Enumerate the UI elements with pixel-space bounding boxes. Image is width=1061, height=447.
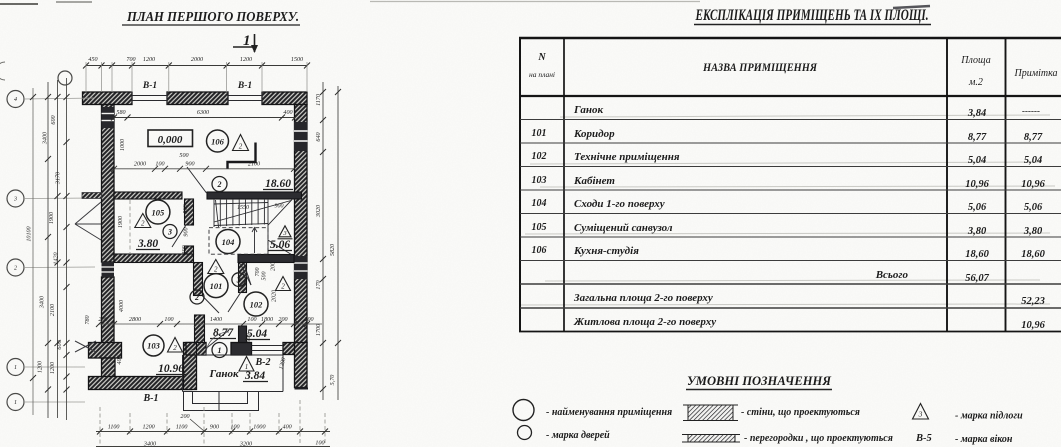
svg-text:2: 2: [214, 266, 218, 274]
svg-text:Примітка: Примітка: [1013, 68, 1057, 79]
svg-text:N: N: [537, 52, 546, 63]
svg-text:18.60: 18.60: [265, 178, 291, 190]
svg-text:1: 1: [245, 363, 249, 371]
svg-text:Всього: Всього: [875, 269, 909, 281]
svg-text:1200: 1200: [143, 57, 155, 63]
svg-text:3200: 3200: [239, 442, 252, 447]
svg-text:580: 580: [116, 110, 125, 116]
svg-text:1: 1: [14, 365, 17, 371]
svg-text:ЕКСПЛІКАЦІЯ ПРИМІЩЕНЬ ТА ІХ ПЛ: ЕКСПЛІКАЦІЯ ПРИМІЩЕНЬ ТА ІХ ПЛОЩІ.: [695, 7, 929, 24]
svg-text:м.2: м.2: [968, 77, 983, 88]
svg-text:- найменування приміщення: - найменування приміщення: [546, 407, 672, 418]
svg-text:400: 400: [283, 425, 292, 431]
svg-text:В-5: В-5: [915, 433, 932, 444]
svg-text:Загальна площа 2-го поверху: Загальна площа 2-го поверху: [573, 292, 713, 304]
svg-text:200: 200: [271, 262, 277, 271]
svg-text:5,04: 5,04: [1024, 155, 1042, 166]
svg-text:2: 2: [194, 293, 199, 302]
svg-text:56,07: 56,07: [965, 273, 989, 284]
svg-text:5.06: 5.06: [270, 239, 290, 251]
svg-text:600: 600: [57, 340, 63, 349]
svg-text:Житлова площа 2-го поверху: Житлова площа 2-го поверху: [573, 316, 716, 328]
svg-text:2800: 2800: [129, 317, 141, 323]
svg-text:3.84: 3.84: [244, 370, 265, 382]
svg-text:------: ------: [1022, 106, 1040, 116]
svg-text:Сходи 1-го поверху: Сходи 1-го поверху: [574, 198, 665, 210]
svg-text:- перегородки , що проектуютьс: - перегородки , що проектуються: [744, 433, 893, 444]
svg-text:2: 2: [173, 344, 177, 352]
svg-text:Технічне приміщення: Технічне приміщення: [574, 151, 680, 163]
svg-text:5820: 5820: [330, 244, 336, 256]
svg-text:102: 102: [250, 300, 264, 310]
svg-text:640: 640: [316, 132, 322, 141]
svg-text:3,84: 3,84: [967, 108, 986, 119]
svg-text:3: 3: [167, 228, 172, 237]
svg-text:2000: 2000: [134, 162, 146, 168]
svg-text:6300: 6300: [197, 110, 209, 116]
svg-text:3: 3: [918, 410, 923, 419]
svg-text:100: 100: [164, 317, 173, 323]
svg-text:200: 200: [98, 317, 107, 323]
svg-text:- марка підлоги: - марка підлоги: [955, 411, 1023, 422]
svg-text:4000: 4000: [119, 300, 125, 312]
svg-text:2: 2: [239, 143, 243, 151]
svg-text:1200: 1200: [143, 425, 155, 431]
svg-text:2: 2: [14, 266, 17, 272]
svg-text:105: 105: [152, 208, 166, 218]
svg-text:3020: 3020: [316, 205, 322, 218]
svg-text:4: 4: [14, 96, 17, 103]
svg-text:101: 101: [210, 281, 223, 291]
svg-text:2: 2: [217, 180, 222, 189]
svg-text:1170: 1170: [316, 94, 322, 106]
svg-text:- стіни, що проектуються: - стіни, що проектуються: [741, 407, 860, 418]
svg-text:1200: 1200: [50, 362, 56, 374]
svg-text:104: 104: [532, 198, 547, 209]
svg-text:52,23: 52,23: [1021, 296, 1045, 307]
svg-text:3: 3: [13, 197, 17, 203]
svg-text:5,70: 5,70: [330, 375, 336, 386]
svg-text:8,77: 8,77: [968, 132, 987, 143]
svg-text:В-2: В-2: [255, 357, 271, 368]
svg-text:105: 105: [532, 222, 547, 233]
svg-text:НАЗВА ПРИМІЩЕННЯ: НАЗВА ПРИМІЩЕННЯ: [702, 62, 818, 74]
svg-text:В-1: В-1: [142, 81, 157, 91]
svg-text:170: 170: [316, 280, 322, 289]
svg-text:0,000: 0,000: [158, 134, 183, 146]
svg-text:106: 106: [532, 245, 547, 256]
svg-text:1420: 1420: [53, 252, 59, 264]
svg-text:600: 600: [51, 115, 57, 124]
svg-text:Ганок: Ганок: [208, 368, 238, 380]
svg-text:500: 500: [179, 153, 188, 159]
svg-text:100: 100: [247, 317, 256, 323]
svg-text:100: 100: [230, 425, 239, 431]
svg-text:на плані: на плані: [529, 70, 555, 79]
svg-text:- марка вікон: - марка вікон: [955, 434, 1013, 445]
svg-text:200: 200: [278, 317, 287, 323]
svg-text:500: 500: [183, 204, 189, 213]
svg-text:900: 900: [210, 425, 219, 431]
svg-text:1: 1: [14, 400, 17, 406]
svg-text:УМОВНІ ПОЗНАЧЕННЯ: УМОВНІ ПОЗНАЧЕННЯ: [687, 374, 831, 388]
svg-text:700: 700: [255, 268, 261, 277]
svg-text:3170: 3170: [56, 172, 62, 185]
svg-text:В-1: В-1: [237, 81, 252, 91]
svg-text:101: 101: [532, 128, 547, 139]
svg-text:700: 700: [126, 57, 135, 63]
svg-text:102: 102: [532, 151, 547, 162]
svg-text:2100: 2100: [50, 304, 56, 316]
svg-text:200: 200: [180, 414, 189, 420]
svg-text:8.77: 8.77: [213, 327, 234, 339]
svg-text:104: 104: [222, 237, 235, 247]
svg-text:1: 1: [218, 346, 222, 355]
svg-text:1200: 1200: [38, 361, 44, 373]
svg-text:400: 400: [283, 110, 292, 116]
svg-text:1400: 1400: [210, 317, 222, 323]
svg-text:5,06: 5,06: [1024, 202, 1043, 213]
svg-text:В-1: В-1: [143, 393, 159, 404]
svg-text:1200: 1200: [240, 57, 252, 63]
svg-text:1900: 1900: [118, 216, 124, 228]
svg-text:2000: 2000: [191, 57, 203, 63]
svg-text:3,80: 3,80: [1023, 226, 1043, 237]
svg-text:3,80: 3,80: [967, 226, 987, 237]
svg-text:500: 500: [262, 272, 268, 281]
svg-text:10100: 10100: [27, 226, 33, 241]
svg-text:1700: 1700: [316, 324, 322, 336]
svg-text:3.80: 3.80: [137, 238, 158, 250]
svg-text:900: 900: [184, 227, 190, 236]
svg-text:400: 400: [117, 355, 123, 364]
svg-text:8,77: 8,77: [1024, 132, 1043, 143]
svg-text:2: 2: [281, 283, 285, 291]
svg-text:1800: 1800: [261, 317, 273, 323]
svg-text:900: 900: [246, 334, 252, 343]
svg-text:ПЛАН ПЕРШОГО ПОВЕРХУ.: ПЛАН ПЕРШОГО ПОВЕРХУ.: [126, 9, 299, 24]
svg-text:900: 900: [275, 204, 284, 210]
svg-text:Площа: Площа: [960, 55, 991, 66]
svg-text:780: 780: [85, 315, 91, 324]
svg-text:5,04: 5,04: [968, 155, 986, 166]
svg-text:1500: 1500: [291, 57, 303, 63]
svg-text:1100: 1100: [108, 425, 120, 431]
svg-text:103: 103: [532, 175, 547, 186]
svg-text:1000: 1000: [253, 425, 265, 431]
svg-text:106: 106: [211, 137, 225, 147]
svg-text:10,96: 10,96: [1021, 320, 1045, 331]
svg-text:450: 450: [88, 57, 97, 63]
svg-text:10.96: 10.96: [158, 363, 184, 375]
svg-text:Коридор: Коридор: [573, 128, 615, 140]
svg-text:3: 3: [236, 276, 241, 285]
svg-text:18,60: 18,60: [1021, 249, 1045, 260]
svg-text:5,06: 5,06: [968, 202, 987, 213]
svg-text:3400: 3400: [143, 442, 156, 447]
svg-text:Кабінет: Кабінет: [573, 175, 615, 187]
svg-text:300: 300: [182, 245, 188, 255]
svg-text:900: 900: [185, 162, 194, 168]
svg-text:3400: 3400: [42, 132, 48, 145]
svg-text:10,96: 10,96: [1021, 179, 1045, 190]
svg-text:2: 2: [141, 220, 145, 228]
svg-text:- марка дверей: - марка дверей: [546, 430, 610, 441]
svg-text:Кухня-студія: Кухня-студія: [573, 245, 639, 257]
svg-text:1550: 1550: [237, 205, 249, 211]
svg-text:18,60: 18,60: [965, 249, 989, 260]
svg-text:3400: 3400: [39, 296, 45, 309]
svg-text:100: 100: [315, 441, 324, 447]
svg-text:103: 103: [147, 341, 161, 351]
svg-text:1100: 1100: [176, 425, 188, 431]
svg-text:2020: 2020: [272, 290, 278, 302]
svg-text:1000: 1000: [120, 139, 126, 151]
svg-text:1900: 1900: [49, 212, 55, 224]
svg-text:Ганок: Ганок: [573, 104, 603, 116]
svg-text:10,96: 10,96: [965, 179, 989, 190]
svg-text:2100: 2100: [248, 162, 260, 168]
svg-text:Суміщений санвузол: Суміщений санвузол: [574, 222, 673, 234]
